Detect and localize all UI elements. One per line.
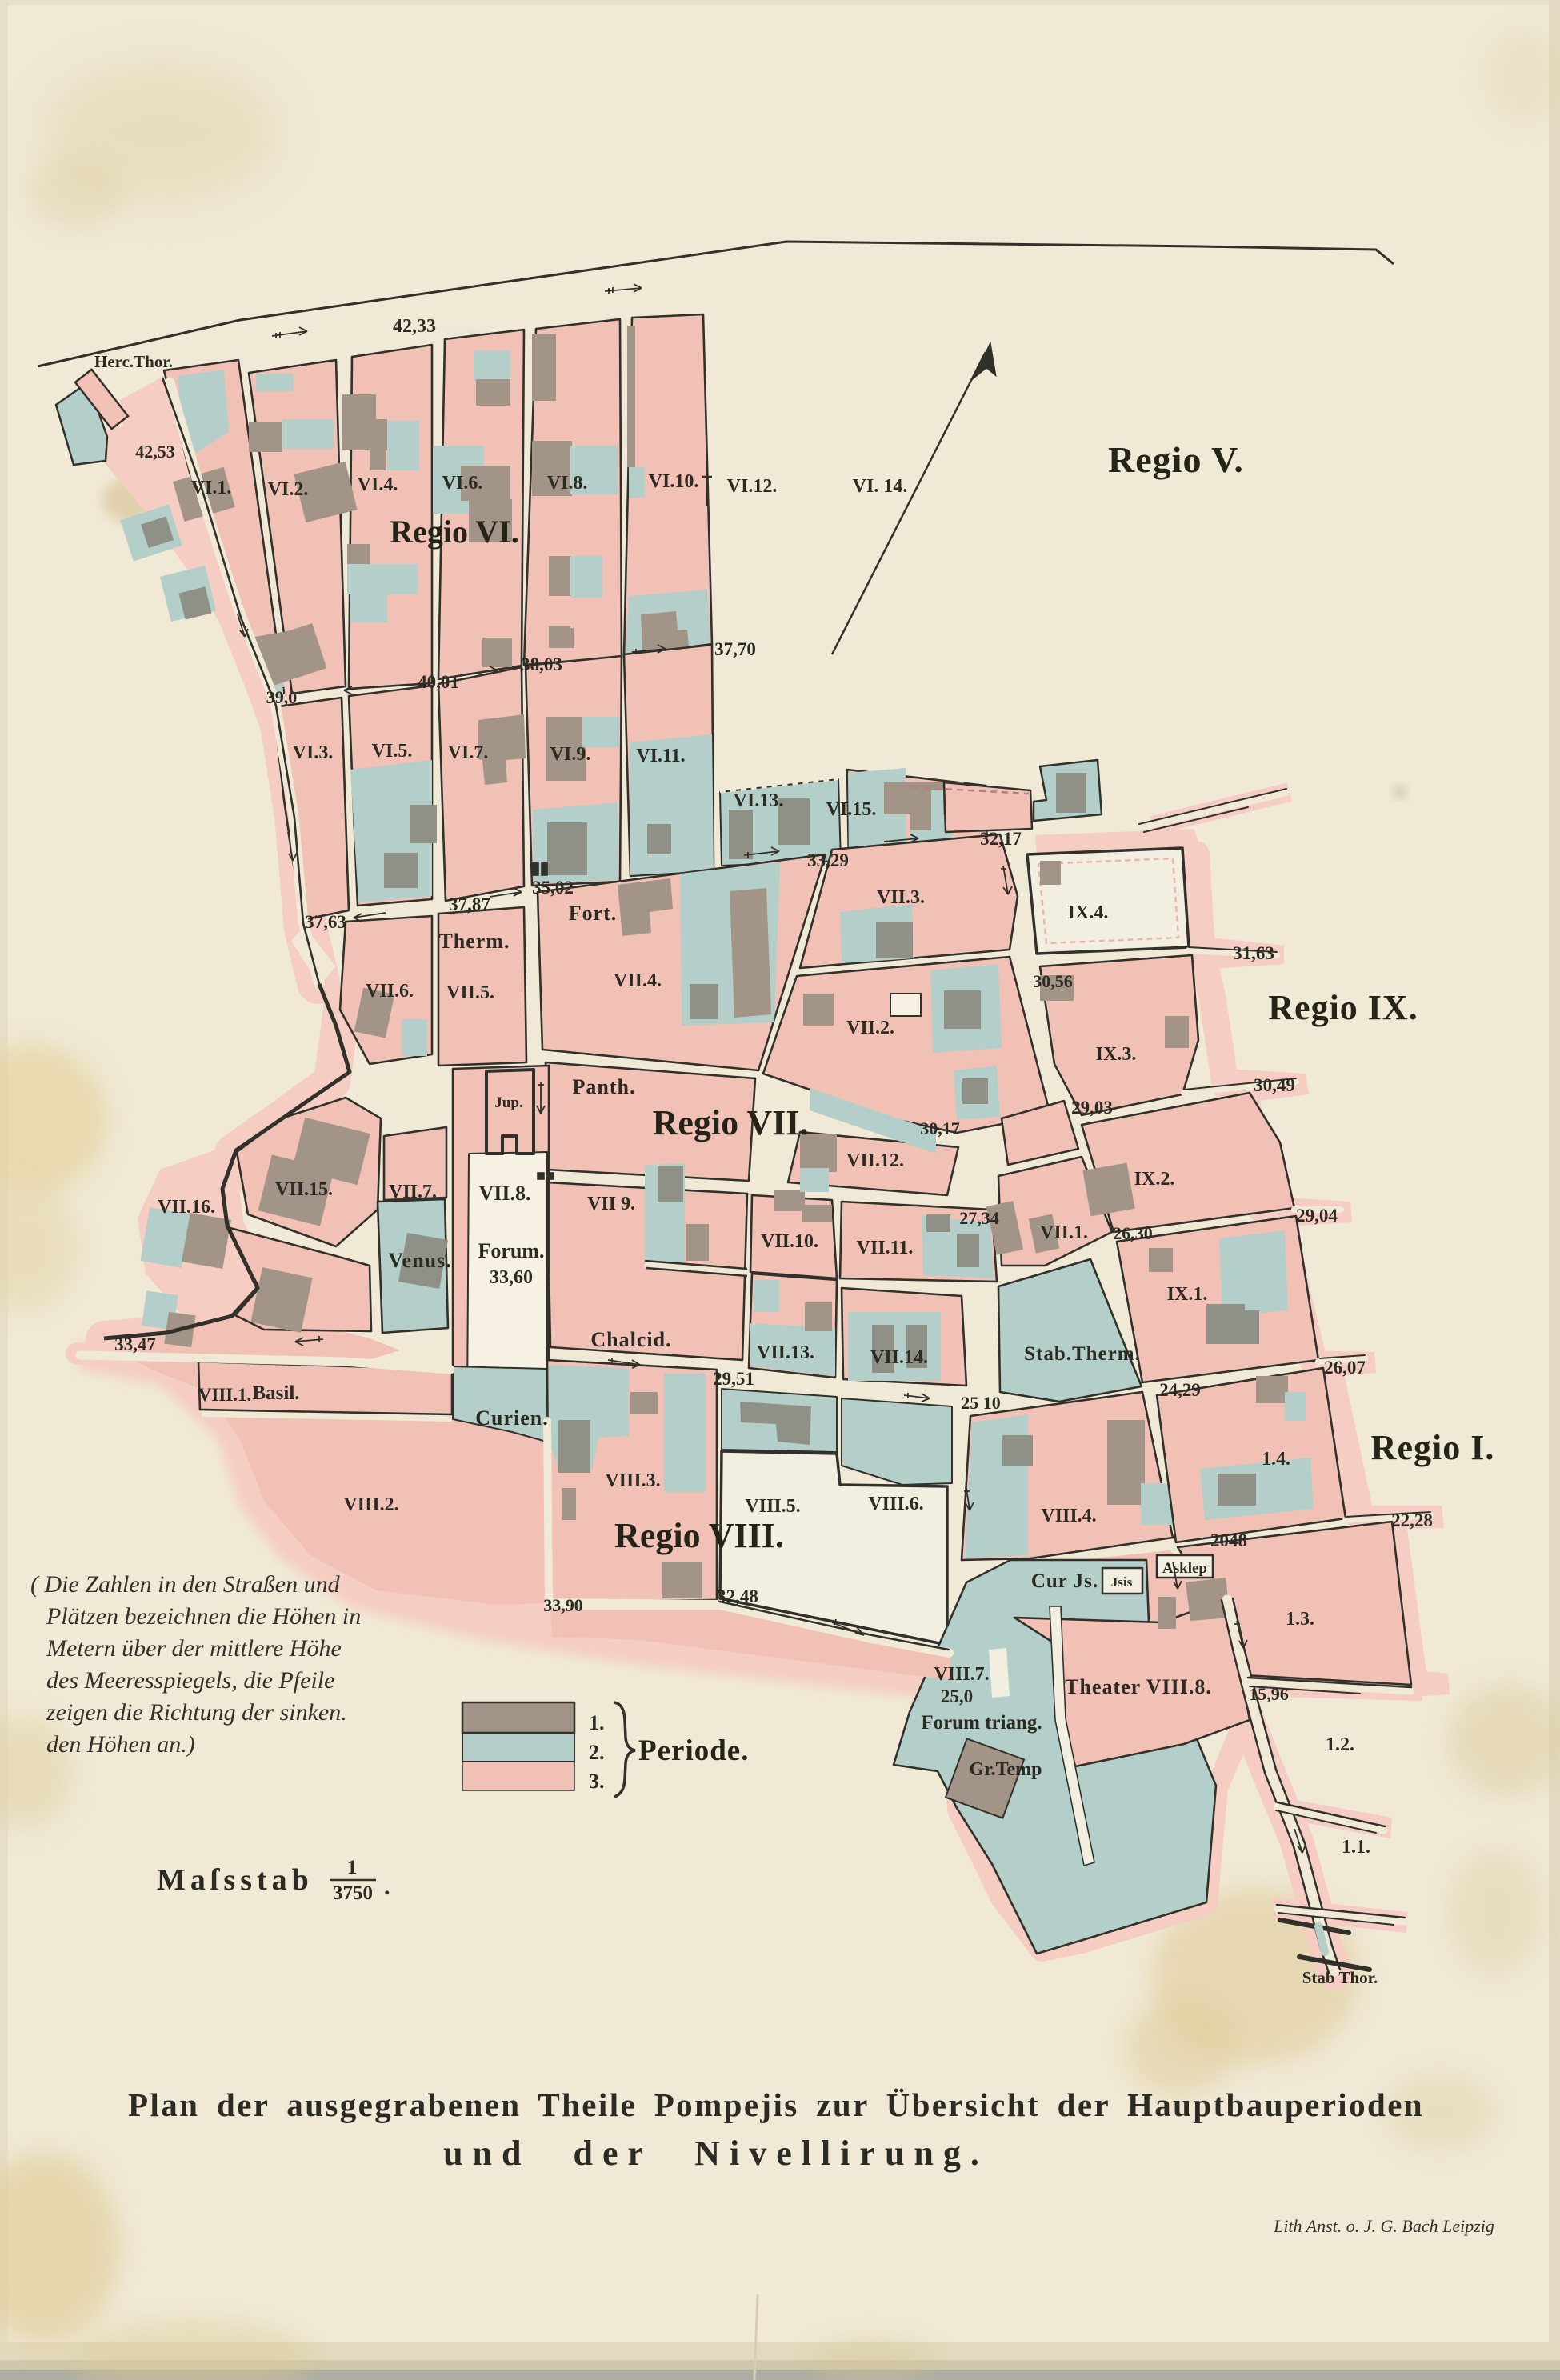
svg-text:VII.5.: VII.5. xyxy=(446,982,494,1003)
svg-text:VI.6.: VI.6. xyxy=(442,473,483,494)
svg-text:35,02: 35,02 xyxy=(532,878,574,898)
svg-text:Herc.Thor.: Herc.Thor. xyxy=(94,352,173,371)
svg-text:VII.15.: VII.15. xyxy=(275,1179,333,1200)
svg-text:39,0: 39,0 xyxy=(266,687,298,707)
svg-text:VII.14.: VII.14. xyxy=(870,1347,928,1368)
svg-text:VII.13.: VII.13. xyxy=(757,1342,814,1363)
svg-text:Fort.: Fort. xyxy=(569,902,618,925)
svg-text:3750: 3750 xyxy=(333,1882,373,1904)
svg-text:Stab Thor.: Stab Thor. xyxy=(1302,1968,1378,1987)
svg-text:VII.1.: VII.1. xyxy=(1040,1222,1088,1243)
svg-text:VIII.3.: VIII.3. xyxy=(605,1470,660,1491)
svg-text:24,29: 24,29 xyxy=(1159,1380,1201,1400)
svg-text:VI.1.: VI.1. xyxy=(191,478,232,498)
svg-text:33,29: 33,29 xyxy=(807,850,849,870)
svg-text:Regio VI.: Regio VI. xyxy=(390,514,518,550)
svg-text:Metern über der mittlere Höhe: Metern über der mittlere Höhe xyxy=(46,1635,342,1662)
svg-text:Jup.: Jup. xyxy=(494,1094,522,1111)
svg-text:Venus.: Venus. xyxy=(388,1249,451,1272)
svg-text:Chalcid.: Chalcid. xyxy=(590,1328,671,1351)
svg-text:22,28: 22,28 xyxy=(1391,1510,1433,1530)
svg-text:25,0: 25,0 xyxy=(941,1686,973,1706)
svg-text:42,33: 42,33 xyxy=(393,316,436,337)
svg-text:32,17: 32,17 xyxy=(980,829,1022,849)
svg-text:VIII.1.: VIII.1. xyxy=(198,1385,251,1405)
svg-text:Stab.Therm.: Stab.Therm. xyxy=(1024,1343,1141,1365)
svg-text:Lith Anst. o. J. G. Bach Leipz: Lith Anst. o. J. G. Bach Leipzig xyxy=(1273,2216,1494,2236)
svg-text:37,87: 37,87 xyxy=(449,894,490,914)
svg-text:Forum.: Forum. xyxy=(478,1239,544,1262)
svg-text:42,53: 42,53 xyxy=(135,442,175,462)
svg-text:IX.2.: IX.2. xyxy=(1134,1169,1175,1190)
svg-text:Regio IX.: Regio IX. xyxy=(1268,988,1418,1027)
svg-text:VI.11.: VI.11. xyxy=(636,746,685,766)
svg-text:VIII.2.: VIII.2. xyxy=(343,1494,398,1515)
svg-text:Basil.: Basil. xyxy=(252,1382,299,1404)
svg-text:IX.3.: IX.3. xyxy=(1096,1044,1137,1065)
svg-text:Forum triang.: Forum triang. xyxy=(921,1712,1042,1734)
svg-text:des Meeresspiegels, die Pfeile: des Meeresspiegels, die Pfeile xyxy=(46,1667,334,1694)
svg-text:1.1.: 1.1. xyxy=(1342,1837,1370,1858)
svg-text:VIII.7.: VIII.7. xyxy=(934,1664,989,1685)
svg-text:37,70: 37,70 xyxy=(714,639,756,659)
svg-text:30,17: 30,17 xyxy=(920,1118,960,1138)
svg-text:1: 1 xyxy=(347,1857,358,1878)
svg-text:31,63: 31,63 xyxy=(1233,943,1274,963)
svg-text:32,48: 32,48 xyxy=(717,1586,758,1606)
svg-text:VII.7.: VII.7. xyxy=(389,1182,437,1202)
svg-text:VI.9.: VI.9. xyxy=(550,744,591,765)
svg-text:25 10: 25 10 xyxy=(961,1393,1001,1413)
svg-text:( Die Zahlen in den Straßen un: ( Die Zahlen in den Straßen und xyxy=(30,1571,341,1598)
svg-text:VI.7.: VI.7. xyxy=(448,742,489,763)
svg-text:29,04: 29,04 xyxy=(1296,1206,1338,1226)
svg-text:Jsis: Jsis xyxy=(1111,1574,1133,1590)
svg-text:26,07: 26,07 xyxy=(1324,1358,1366,1378)
svg-text:38,03: 38,03 xyxy=(521,654,562,674)
svg-text:Theater VIII.8.: Theater VIII.8. xyxy=(1065,1675,1212,1698)
svg-text:Therm.: Therm. xyxy=(438,930,510,953)
svg-text:2.: 2. xyxy=(589,1741,605,1764)
svg-text:27,34: 27,34 xyxy=(959,1208,999,1228)
svg-text:Cur Js.: Cur Js. xyxy=(1031,1570,1098,1592)
svg-text:VII.11.: VII.11. xyxy=(857,1238,914,1258)
svg-text:den Höhen an.): den Höhen an.) xyxy=(46,1731,195,1758)
svg-text:1.3.: 1.3. xyxy=(1286,1609,1314,1630)
svg-text:Panth.: Panth. xyxy=(573,1075,636,1098)
svg-text:VI.8.: VI.8. xyxy=(547,473,588,494)
svg-text:VIII.4.: VIII.4. xyxy=(1041,1506,1096,1526)
svg-text:33,90: 33,90 xyxy=(543,1595,583,1615)
svg-text:40,01: 40,01 xyxy=(418,672,459,692)
svg-text:30,56: 30,56 xyxy=(1033,971,1073,991)
svg-text:33,60: 33,60 xyxy=(490,1267,533,1288)
svg-text:VII.12.: VII.12. xyxy=(846,1150,904,1171)
svg-text:VI.10.: VI.10. xyxy=(649,471,699,492)
svg-text:VII.8.: VII.8. xyxy=(478,1182,530,1205)
svg-text:33,47: 33,47 xyxy=(114,1334,156,1354)
svg-text:VI.5.: VI.5. xyxy=(372,741,413,762)
svg-text:VI.15.: VI.15. xyxy=(826,799,877,820)
svg-text:37,63: 37,63 xyxy=(305,912,346,932)
svg-text:29,03: 29,03 xyxy=(1071,1098,1113,1118)
svg-text:und der Nivellirung.: und der Nivellirung. xyxy=(443,2134,989,2173)
svg-text:30,49: 30,49 xyxy=(1254,1075,1295,1095)
svg-text:Plan der ausgegrabenen Theile: Plan der ausgegrabenen Theile Pompejis z… xyxy=(128,2086,1424,2123)
svg-text:IX.4.: IX.4. xyxy=(1068,902,1109,923)
svg-text:Regio I.: Regio I. xyxy=(1371,1428,1495,1467)
svg-text:26,30: 26,30 xyxy=(1113,1223,1153,1243)
svg-text:VII.16.: VII.16. xyxy=(158,1197,215,1218)
svg-text:1.2.: 1.2. xyxy=(1326,1734,1354,1755)
svg-text:VII.10.: VII.10. xyxy=(761,1231,818,1252)
svg-text:VI. 14.: VI. 14. xyxy=(853,476,908,497)
svg-text:VI.4.: VI.4. xyxy=(358,474,398,495)
svg-text:Regio VII.: Regio VII. xyxy=(653,1103,809,1142)
svg-text:VII.6.: VII.6. xyxy=(366,981,414,1002)
svg-text:1.4.: 1.4. xyxy=(1262,1449,1290,1470)
svg-text:VIII.6.: VIII.6. xyxy=(868,1494,923,1514)
svg-text:Plätzen bezeichnen die Höhen i: Plätzen bezeichnen die Höhen in xyxy=(46,1603,361,1630)
svg-text:VII.3.: VII.3. xyxy=(877,887,925,908)
svg-text:15,96: 15,96 xyxy=(1249,1684,1289,1704)
svg-text:IX.1.: IX.1. xyxy=(1167,1284,1208,1305)
svg-text:Regio V.: Regio V. xyxy=(1108,439,1244,480)
svg-text:2048: 2048 xyxy=(1210,1530,1247,1550)
svg-text:Maſsstab: Maſsstab xyxy=(157,1863,314,1897)
svg-text:Regio VIII.: Regio VIII. xyxy=(614,1516,784,1555)
svg-text:VI.2.: VI.2. xyxy=(268,479,309,500)
svg-text:Periode.: Periode. xyxy=(638,1734,749,1767)
svg-text:VII.2.: VII.2. xyxy=(846,1018,894,1038)
svg-text:Gr.Temp: Gr.Temp xyxy=(970,1759,1042,1780)
svg-text:1.: 1. xyxy=(589,1711,605,1734)
svg-text:VII.4.: VII.4. xyxy=(614,970,662,991)
svg-text:.: . xyxy=(384,1874,390,1900)
svg-text:3.: 3. xyxy=(589,1770,605,1793)
svg-text:VI.12.: VI.12. xyxy=(727,476,778,497)
svg-text:VI.13.: VI.13. xyxy=(734,790,784,811)
svg-text:Asklep: Asklep xyxy=(1162,1560,1207,1577)
svg-text:zeigen die Richtung der sinken: zeigen die Richtung der sinken. xyxy=(46,1699,347,1726)
svg-text:VIII.5.: VIII.5. xyxy=(745,1496,800,1517)
svg-text:29,51: 29,51 xyxy=(713,1369,754,1389)
svg-text:Curien.: Curien. xyxy=(475,1406,549,1430)
svg-text:VI.3.: VI.3. xyxy=(293,742,334,763)
svg-text:VII 9.: VII 9. xyxy=(587,1194,635,1214)
